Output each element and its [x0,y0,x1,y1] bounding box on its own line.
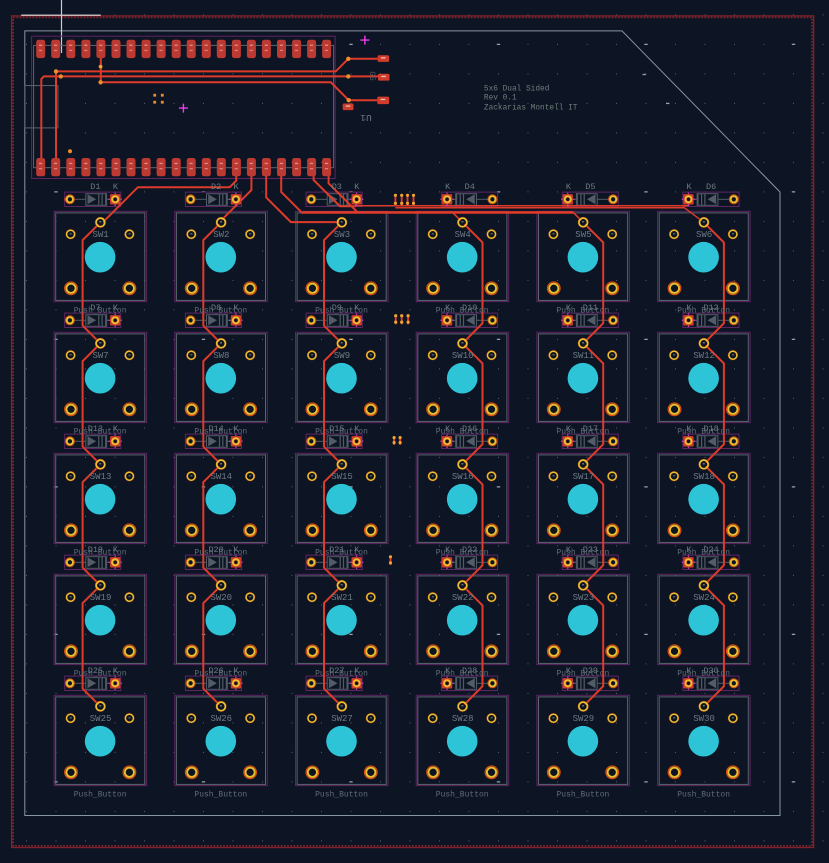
svg-text:K: K [687,182,693,192]
svg-text:Push_Button: Push_Button [315,548,368,557]
svg-text:SW22: SW22 [452,593,474,603]
svg-text:Push_Button: Push_Button [194,790,247,799]
svg-text:SW20: SW20 [210,593,232,603]
svg-text:Push_Button: Push_Button [194,669,247,678]
svg-text:Push_Button: Push_Button [677,427,730,436]
svg-text:D2: D2 [211,182,221,192]
svg-text:SW11: SW11 [573,351,595,361]
svg-text:Push_Button: Push_Button [194,427,247,436]
svg-text:SW7: SW7 [92,351,108,361]
svg-text:K: K [566,182,572,192]
svg-text:SW17: SW17 [573,472,595,482]
svg-text:SW4: SW4 [455,230,471,240]
svg-text:SW21: SW21 [331,593,353,603]
svg-text:SW1: SW1 [92,230,108,240]
svg-text:SW29: SW29 [573,714,595,724]
svg-text:Push_Button: Push_Button [556,790,609,799]
svg-text:Push_Button: Push_Button [436,548,489,557]
svg-text:SW10: SW10 [452,351,474,361]
svg-text:K: K [234,182,240,192]
svg-text:Push_Button: Push_Button [315,669,368,678]
svg-text:SW15: SW15 [331,472,353,482]
svg-text:Push_Button: Push_Button [556,427,609,436]
svg-text:SW19: SW19 [90,593,112,603]
svg-text:D4: D4 [465,182,475,192]
svg-text:Push_Button: Push_Button [436,669,489,678]
svg-text:Push_Button: Push_Button [74,306,127,315]
svg-text:D1: D1 [90,182,100,192]
svg-text:SW3: SW3 [334,230,350,240]
svg-text:SW16: SW16 [452,472,474,482]
svg-text:Push_Button: Push_Button [436,427,489,436]
svg-text:5x6 Dual Sided: 5x6 Dual Sided [484,85,550,93]
svg-text:D6: D6 [706,182,716,192]
svg-text:Push_Button: Push_Button [74,548,127,557]
svg-text:D3: D3 [332,182,342,192]
svg-text:G5: G5 [367,71,376,81]
svg-text:SW13: SW13 [90,472,112,482]
svg-text:SW30: SW30 [693,714,715,724]
svg-text:Push_Button: Push_Button [194,548,247,557]
svg-text:Push_Button: Push_Button [315,306,368,315]
svg-text:Push_Button: Push_Button [315,427,368,436]
svg-text:Push_Button: Push_Button [677,306,730,315]
svg-text:SW8: SW8 [213,351,229,361]
svg-text:SW9: SW9 [334,351,350,361]
svg-text:Push_Button: Push_Button [74,790,127,799]
svg-text:SW28: SW28 [452,714,474,724]
svg-text:U1: U1 [360,112,372,123]
svg-text:Push_Button: Push_Button [677,790,730,799]
svg-text:SW25: SW25 [90,714,112,724]
svg-text:SW23: SW23 [573,593,595,603]
svg-text:SW24: SW24 [693,593,715,603]
svg-text:Push_Button: Push_Button [74,669,127,678]
svg-text:Push_Button: Push_Button [315,790,368,799]
svg-text:Push_Button: Push_Button [556,669,609,678]
svg-text:K: K [354,182,360,192]
svg-text:Zackarias Montell IT: Zackarias Montell IT [484,105,578,113]
svg-text:K: K [445,182,451,192]
svg-text:SW26: SW26 [210,714,232,724]
svg-text:SW14: SW14 [210,472,232,482]
svg-text:SW2: SW2 [213,230,229,240]
svg-text:Push_Button: Push_Button [556,548,609,557]
svg-text:Push_Button: Push_Button [677,548,730,557]
svg-text:SW27: SW27 [331,714,353,724]
svg-text:K: K [113,182,119,192]
svg-text:D5: D5 [585,182,595,192]
svg-text:SW12: SW12 [693,351,715,361]
svg-text:Rev 0.1: Rev 0.1 [484,95,517,103]
svg-text:Push_Button: Push_Button [556,306,609,315]
svg-text:Push_Button: Push_Button [194,306,247,315]
svg-text:Push_Button: Push_Button [436,306,489,315]
svg-text:Push_Button: Push_Button [74,427,127,436]
svg-text:SW5: SW5 [575,230,591,240]
svg-text:SW18: SW18 [693,472,715,482]
svg-text:Push_Button: Push_Button [436,790,489,799]
svg-text:Push_Button: Push_Button [677,669,730,678]
svg-text:SW6: SW6 [696,230,712,240]
